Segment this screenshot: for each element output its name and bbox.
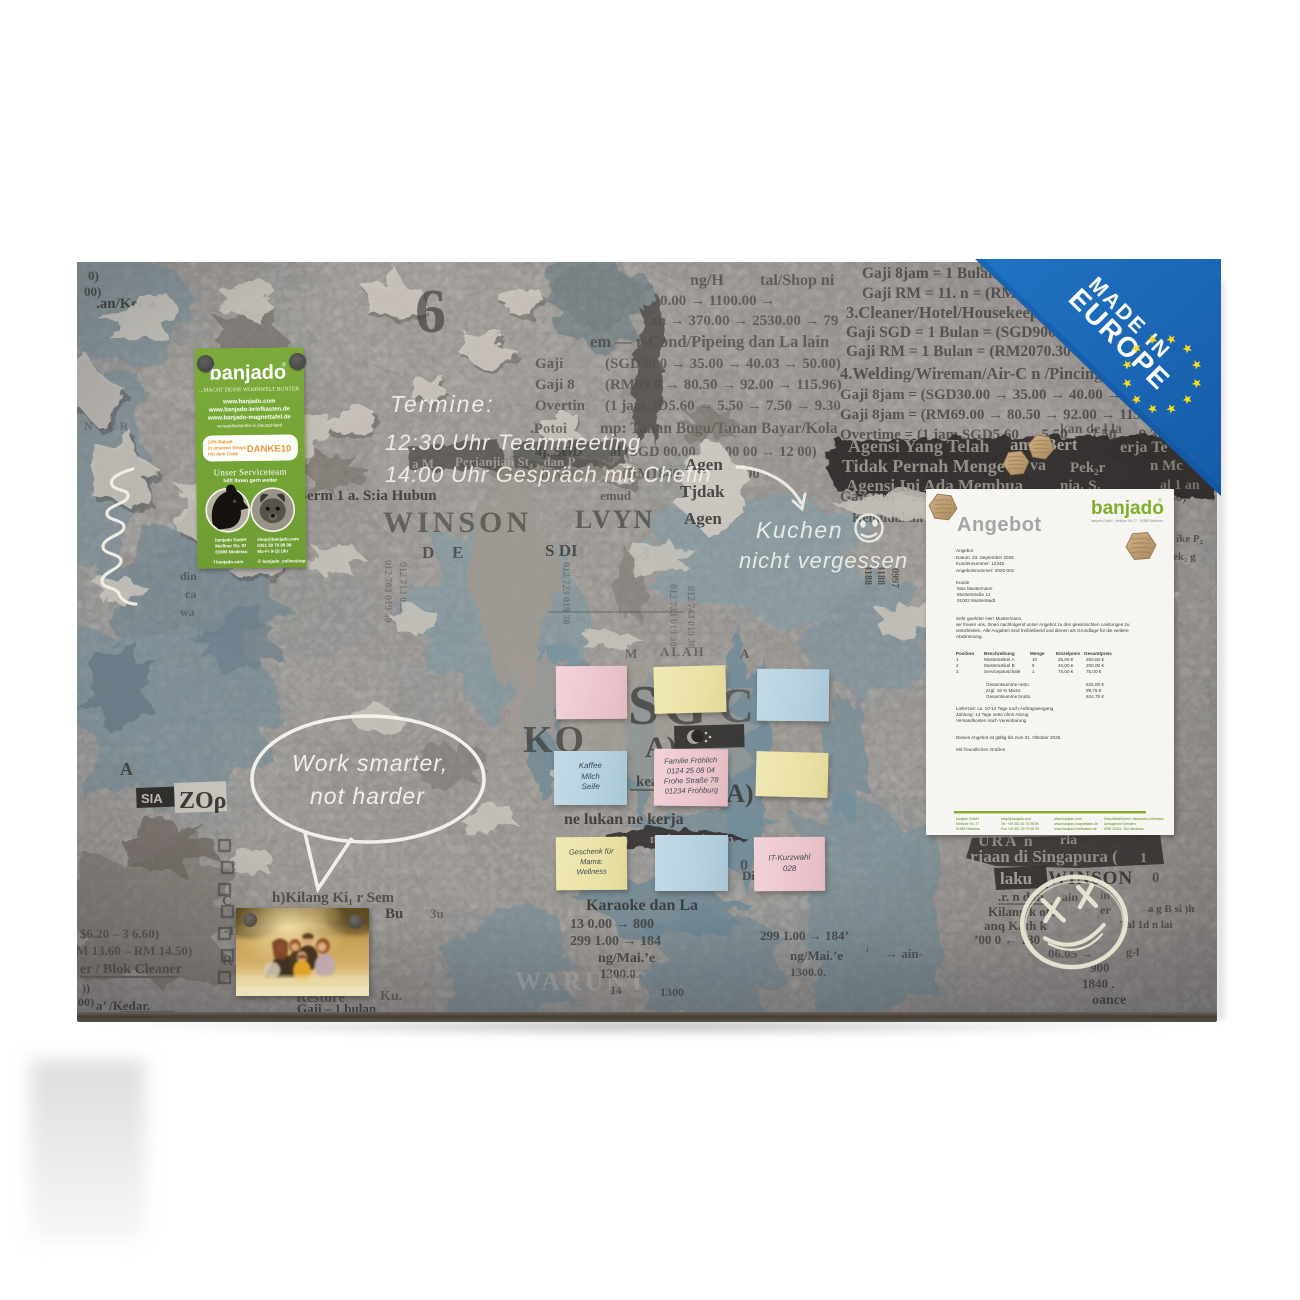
svg-text:5: 5	[1032, 663, 1035, 668]
svg-text:☉ banjado_onlineshop: ☉ banjado_onlineshop	[257, 558, 305, 564]
svg-text:nicht vergessen: nicht vergessen	[739, 548, 908, 573]
svg-text:3: 3	[956, 669, 959, 674]
svg-text:01689 Niederau: 01689 Niederau	[215, 549, 248, 554]
svg-text:Gesamtsumme netto: Gesamtsumme netto	[986, 682, 1029, 687]
svg-text:Versandkosten nach Vereinbarun: Versandkosten nach Vereinbarung	[956, 718, 1027, 723]
svg-text:40,00 €: 40,00 €	[1058, 663, 1074, 668]
svg-text:01002 Musterstadt: 01002 Musterstadt	[957, 598, 996, 603]
svg-text:Meißner Str. 97: Meißner Str. 97	[215, 543, 247, 548]
svg-text:Unser Serviceteam: Unser Serviceteam	[213, 466, 286, 477]
svg-text:25,00 €: 25,00 €	[1058, 657, 1074, 662]
svg-text:in unseren Shops: in unseren Shops	[208, 445, 247, 451]
svg-text:www.banjado.com: www.banjado.com	[1054, 817, 1082, 821]
svg-text:www.banjado-briefkasten.de: www.banjado-briefkasten.de	[208, 406, 291, 413]
svg-text:1: 1	[1032, 669, 1035, 674]
svg-text:mit dem Code: mit dem Code	[208, 451, 239, 456]
svg-text:Fax +49 351 30 70 98 99: Fax +49 351 30 70 98 99	[1001, 827, 1039, 831]
svg-text:shop@banjado.com: shop@banjado.com	[1001, 817, 1031, 821]
svg-text:zzgl. 19 % MwSt.: zzgl. 19 % MwSt.	[986, 688, 1021, 693]
svg-text:Servicepauschale: Servicepauschale	[984, 669, 1021, 674]
svg-text:www.banjado-magnettafel.de: www.banjado-magnettafel.de	[1054, 822, 1098, 826]
svg-text:Work smarter,: Work smarter,	[292, 750, 448, 776]
svg-text:624,75 €: 624,75 €	[1086, 694, 1104, 699]
svg-text:www.banjado.com: www.banjado.com	[222, 399, 276, 406]
svg-text:0351 30 70 98 98: 0351 30 70 98 98	[257, 542, 292, 547]
svg-text:Geschäftsführerin: Alexandra L: Geschäftsführerin: Alexandra Liebmann	[1104, 817, 1164, 821]
svg-text:wir freuen uns, Ihnen nachfolg: wir freuen uns, Ihnen nachfolgend unser …	[956, 622, 1130, 627]
svg-text:Lieferzeit: ca. 10-14 Tage nac: Lieferzeit: ca. 10-14 Tage nach Auftrags…	[956, 706, 1054, 711]
svg-text:200,00 €: 200,00 €	[1086, 663, 1104, 668]
svg-text:14:00 Uhr Gespräch mit Chefin: 14:00 Uhr Gespräch mit Chefin	[385, 462, 711, 487]
svg-text:HRB 33321, Sitz Niederau: HRB 33321, Sitz Niederau	[1104, 827, 1144, 831]
svg-text:Musterartikel B: Musterartikel B	[984, 663, 1015, 668]
svg-text:Kuchen: Kuchen	[756, 517, 843, 543]
svg-text:Amtsgericht Dresden: Amtsgericht Dresden	[1104, 822, 1136, 826]
svg-text:Gesamtpreis: Gesamtpreis	[1084, 651, 1112, 656]
svg-text:525,00 €: 525,00 €	[1086, 682, 1104, 687]
svg-text:75,00 €: 75,00 €	[1086, 669, 1102, 674]
svg-text:www.banjado-magnettafel.de: www.banjado-magnettafel.de	[207, 414, 292, 421]
svg-text:2: 2	[956, 663, 959, 668]
svg-text:Kundennummer: 12345: Kundennummer: 12345	[956, 561, 1004, 566]
svg-text:1: 1	[956, 657, 959, 662]
svg-text:250,00 €: 250,00 €	[1086, 657, 1104, 662]
svg-text:Sehr geehrter Herr Mustermann,: Sehr geehrter Herr Mustermann,	[956, 616, 1022, 621]
svg-text:unterbreiten. Alle Angaben sin: unterbreiten. Alle Angaben sind freiblei…	[956, 628, 1129, 633]
svg-text:75,00 €: 75,00 €	[1058, 669, 1074, 674]
svg-text:not harder: not harder	[310, 783, 425, 809]
svg-text:Beschreibung: Beschreibung	[984, 651, 1015, 656]
svg-text:Dieses Angebot ist gültig bis: Dieses Angebot ist gültig bis zum 31. Ok…	[956, 735, 1061, 740]
svg-text:12:30 Uhr Teammeeting: 12:30 Uhr Teammeeting	[385, 430, 641, 455]
svg-text:banjado GmbH: banjado GmbH	[215, 537, 246, 542]
svg-text:Musterartikel A: Musterartikel A	[984, 657, 1015, 662]
svg-text:Einzelpreis: Einzelpreis	[1056, 651, 1081, 656]
svg-text:Tel. +49 351 30 70 98 98: Tel. +49 351 30 70 98 98	[1001, 822, 1039, 826]
svg-text:...MACHT DEINE WOHNWELT BUNTER: ...MACHT DEINE WOHNWELT BUNTER	[199, 386, 299, 393]
svg-text:Angebotsnummer: 2025-001: Angebotsnummer: 2025-001	[956, 568, 1015, 573]
svg-text:Datum: 23. September 2025: Datum: 23. September 2025	[956, 555, 1014, 560]
svg-text:shop@banjado.com: shop@banjado.com	[257, 536, 299, 542]
svg-text:banjado: banjado	[209, 361, 286, 384]
svg-text:Position: Position	[956, 651, 974, 656]
svg-text:hilft Ihnen gern weiter: hilft Ihnen gern weiter	[223, 478, 277, 485]
svg-text:Max Mustermann: Max Mustermann	[957, 586, 993, 591]
svg-text:banjado GmbH: banjado GmbH	[956, 817, 979, 821]
svg-text:Zahlung: 14 Tage netto ohne Ab: Zahlung: 14 Tage netto ohne Abzug	[956, 712, 1029, 717]
svg-text:14% Rabatt: 14% Rabatt	[208, 439, 233, 444]
svg-text:99,75 €: 99,75 €	[1086, 688, 1102, 693]
svg-text:DANKE10: DANKE10	[247, 443, 292, 455]
svg-text:Musterstraße 12: Musterstraße 12	[957, 592, 991, 597]
svg-text:versandkostenfrei in Deutschla: versandkostenfrei in Deutschland	[217, 423, 283, 429]
svg-text:®: ®	[282, 361, 287, 368]
svg-text:Mit freundlichen Grüßen: Mit freundlichen Grüßen	[956, 747, 1006, 752]
svg-text:f banjado.com: f banjado.com	[213, 559, 243, 564]
svg-text:Menge: Menge	[1030, 651, 1045, 656]
svg-text:Termine:: Termine:	[390, 391, 495, 417]
svg-text:Abstimmung.: Abstimmung.	[956, 634, 983, 639]
svg-text:www.banjado-briefkasten.de: www.banjado-briefkasten.de	[1054, 827, 1097, 831]
svg-text:Kunde: Kunde	[956, 580, 970, 585]
svg-text:Gesamtsumme brutto: Gesamtsumme brutto	[986, 694, 1031, 699]
svg-text:Angebot: Angebot	[956, 548, 974, 553]
svg-text:Mo-Fr 9-15 Uhr: Mo-Fr 9-15 Uhr	[257, 548, 288, 553]
svg-text:Meißner Str. 27: Meißner Str. 27	[956, 822, 979, 826]
svg-text:01589 Niederau: 01589 Niederau	[956, 827, 980, 831]
svg-text:10: 10	[1032, 657, 1038, 662]
